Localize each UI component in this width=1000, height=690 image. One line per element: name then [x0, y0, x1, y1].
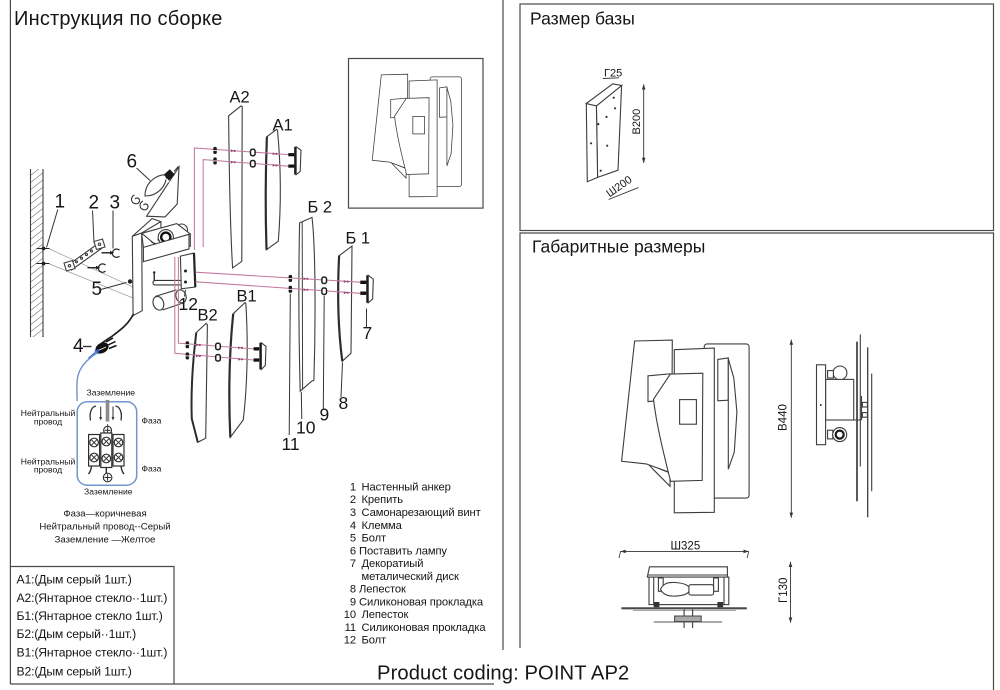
svg-text:A2: A2 — [230, 89, 250, 107]
svg-text:3: 3 — [110, 193, 121, 214]
svg-text:Клемма: Клемма — [362, 520, 403, 532]
svg-text:В200: В200 — [631, 109, 643, 135]
svg-text:11: 11 — [282, 434, 300, 454]
svg-text:Ш325: Ш325 — [671, 541, 701, 553]
svg-text:Б1:(Янтарное стекло 1шт.): Б1:(Янтарное стекло 1шт.) — [17, 609, 163, 623]
svg-text:Г130: Г130 — [778, 578, 790, 603]
svg-text:А1:(Дым серый 1шт.): А1:(Дым серый 1шт.) — [17, 573, 132, 587]
svg-text:Заземление: Заземление — [84, 486, 133, 496]
svg-text:Фаза: Фаза — [142, 415, 162, 425]
svg-text:Самонарезающий винт: Самонарезающий винт — [362, 507, 481, 519]
svg-text:провод: провод — [34, 465, 62, 475]
svg-text:2: 2 — [89, 193, 100, 214]
svg-text:6: 6 — [350, 545, 356, 557]
svg-text:Нейтральный провод--Серый: Нейтральный провод--Серый — [39, 522, 170, 533]
svg-text:металический диск: металический диск — [362, 571, 459, 583]
svg-text:7: 7 — [363, 323, 373, 343]
svg-text:9: 9 — [350, 596, 356, 608]
svg-text:4: 4 — [73, 336, 84, 357]
svg-text:Силиконовая прокладка: Силиконовая прокладка — [359, 596, 484, 608]
svg-text:Настенный анкер: Настенный анкер — [362, 482, 451, 494]
svg-text:Силиконовая прокладка: Силиконовая прокладка — [362, 622, 487, 634]
svg-text:Product coding: POINT AP2: Product coding: POINT AP2 — [377, 663, 629, 685]
svg-text:6: 6 — [127, 152, 138, 173]
svg-text:B1: B1 — [237, 288, 257, 306]
svg-text:4: 4 — [350, 520, 356, 532]
svg-text:11: 11 — [345, 622, 356, 634]
svg-text:7: 7 — [350, 558, 356, 570]
svg-text:Б2:(Дым серый··1шт.): Б2:(Дым серый··1шт.) — [17, 627, 137, 641]
svg-text:3: 3 — [350, 507, 356, 519]
svg-text:Инструкция по сборке: Инструкция по сборке — [14, 8, 223, 30]
svg-text:1: 1 — [350, 482, 356, 494]
svg-text:5: 5 — [350, 533, 356, 545]
svg-text:Поставить лампу: Поставить лампу — [359, 545, 447, 557]
svg-text:В1:(Янтарное стекло··1шт.): В1:(Янтарное стекло··1шт.) — [17, 646, 168, 660]
svg-text:12: 12 — [179, 294, 198, 314]
svg-text:Размер базы: Размер базы — [530, 9, 635, 29]
svg-text:Болт: Болт — [362, 635, 387, 647]
svg-text:Фаза—коричневая: Фаза—коричневая — [63, 509, 146, 520]
svg-text:Б 1: Б 1 — [346, 230, 371, 248]
svg-text:Ш200: Ш200 — [604, 174, 634, 200]
svg-text:2: 2 — [350, 494, 356, 506]
svg-text:9: 9 — [320, 405, 330, 425]
svg-text:В440: В440 — [778, 404, 790, 431]
svg-text:А2:(Янтарное стекло··1шт.): А2:(Янтарное стекло··1шт.) — [17, 591, 168, 605]
svg-text:Б 2: Б 2 — [308, 199, 333, 217]
svg-text:B2: B2 — [198, 307, 218, 325]
svg-text:A1: A1 — [273, 117, 293, 135]
svg-text:12: 12 — [344, 635, 356, 647]
svg-text:В2:(Дым серый 1шт.): В2:(Дым серый 1шт.) — [17, 665, 132, 679]
svg-text:Болт: Болт — [362, 533, 387, 545]
svg-text:8: 8 — [350, 584, 356, 596]
svg-text:Фаза: Фаза — [142, 464, 162, 474]
svg-text:Заземление: Заземление — [87, 387, 136, 397]
svg-text:8: 8 — [339, 393, 349, 413]
svg-text:Лепесток: Лепесток — [359, 584, 406, 596]
svg-text:Лепесток: Лепесток — [362, 609, 409, 621]
svg-text:10: 10 — [344, 609, 356, 621]
svg-text:Крепить: Крепить — [362, 494, 404, 506]
svg-text:Декоратиый: Декоратиый — [362, 558, 424, 570]
svg-text:провод: провод — [34, 417, 62, 427]
svg-text:1: 1 — [55, 192, 66, 213]
svg-text:Габаритные размеры: Габаритные размеры — [532, 237, 705, 257]
svg-text:Заземление —Желтое: Заземление —Желтое — [55, 535, 156, 546]
